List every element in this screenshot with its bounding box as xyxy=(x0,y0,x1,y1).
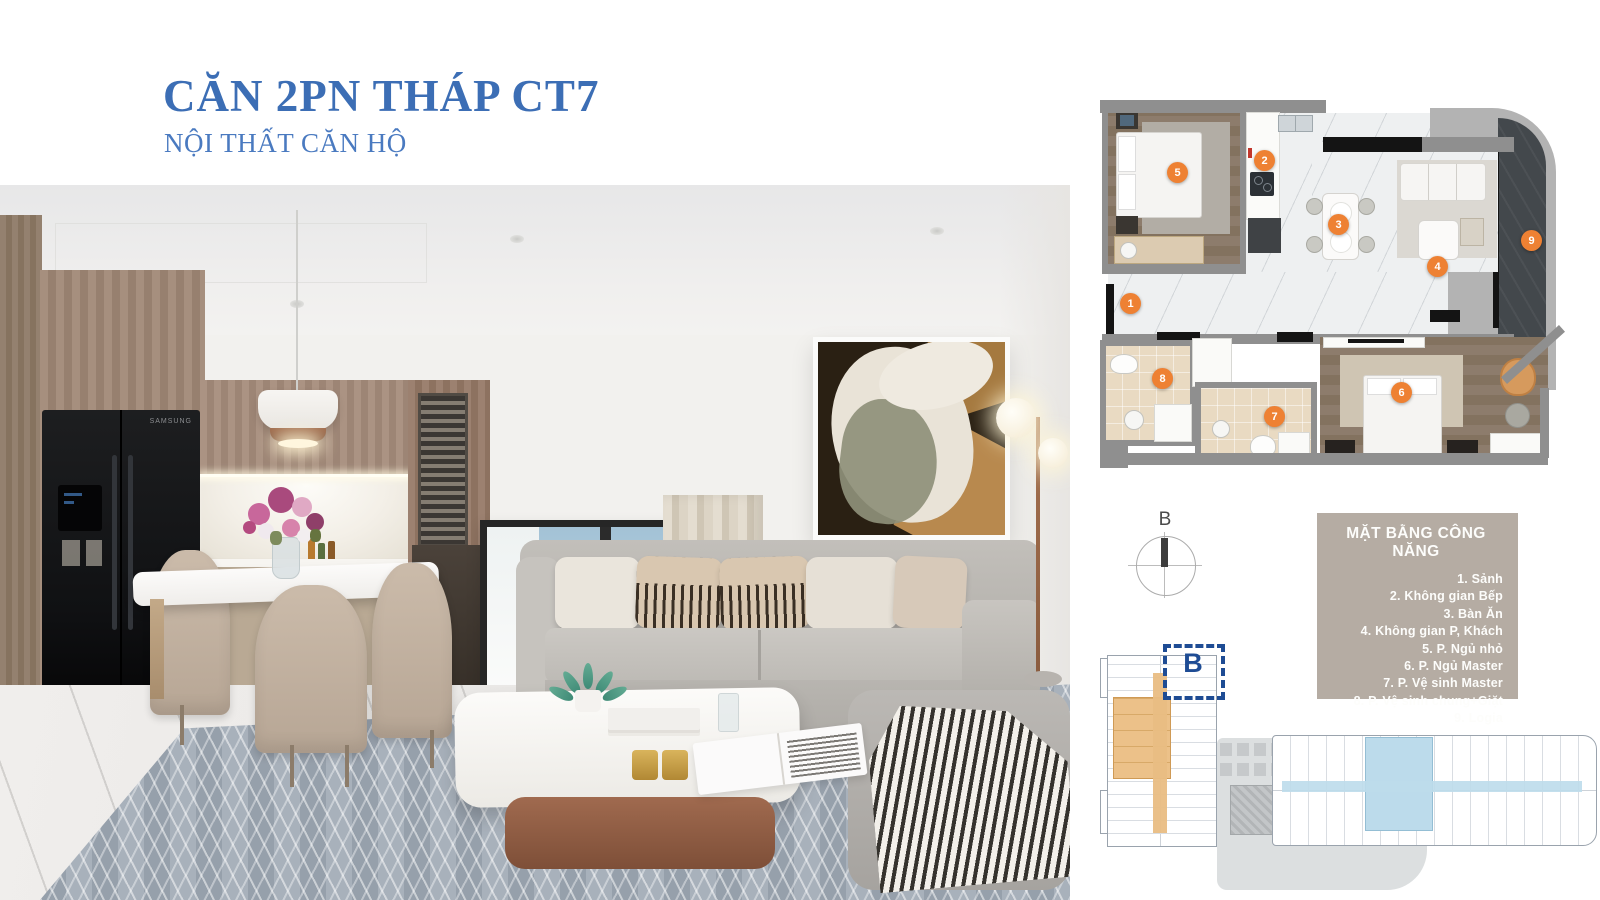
unit-floor-plan: 123456789 xyxy=(1100,98,1558,484)
page: CĂN 2PN THÁP CT7 NỘI THẤT CĂN HỘ xyxy=(0,0,1600,900)
pendant-glow xyxy=(278,439,318,448)
fridge-display xyxy=(64,493,82,496)
sofa-pillow-striped xyxy=(635,556,723,631)
site-unit-locator-label: B xyxy=(1168,648,1218,679)
bottle xyxy=(318,543,325,559)
pendant-lamp xyxy=(258,390,338,430)
plan-markers: 123456789 xyxy=(1100,98,1558,484)
fridge-display xyxy=(64,501,74,504)
room-marker-6: 6 xyxy=(1391,382,1412,403)
floor-lamp-globe xyxy=(996,398,1036,438)
downlight xyxy=(930,227,944,235)
sofa-pillow xyxy=(806,557,898,629)
chair-leg xyxy=(290,745,294,787)
interior-photo: SAMSUNG xyxy=(0,185,1070,900)
sofa-arm-right xyxy=(962,600,1040,700)
fridge-brand-label: SAMSUNG xyxy=(150,418,192,425)
dining-chair xyxy=(255,585,367,753)
fridge-door-seam xyxy=(120,410,122,695)
room-marker-8: 8 xyxy=(1152,368,1173,389)
site-corridor-blue xyxy=(1282,781,1582,792)
chair-leg xyxy=(180,705,184,745)
room-marker-1: 1 xyxy=(1120,293,1141,314)
site-plan: B xyxy=(1080,640,1560,896)
sofa-pillow xyxy=(892,555,968,631)
sofa-pillow-striped xyxy=(719,555,811,630)
sofa-seam xyxy=(758,630,761,680)
legend-item: 1. Sảnh xyxy=(1329,571,1503,588)
table-leg xyxy=(150,599,164,699)
book-stack xyxy=(608,708,700,730)
drinking-glass xyxy=(718,693,739,732)
room-marker-4: 4 xyxy=(1427,256,1448,277)
bottle xyxy=(328,541,335,559)
room-marker-9: 9 xyxy=(1521,230,1542,251)
floor-lamp-base xyxy=(1024,671,1062,687)
room-marker-3: 3 xyxy=(1328,214,1349,235)
fridge-note xyxy=(62,540,80,566)
abstract-wall-art xyxy=(813,337,1010,540)
page-subtitle: NỘI THẤT CĂN HỘ xyxy=(164,128,407,159)
bottle xyxy=(308,539,315,559)
fridge-handle xyxy=(112,455,117,630)
legend-item: 3. Bàn Ăn xyxy=(1329,606,1503,623)
room-marker-7: 7 xyxy=(1264,406,1285,427)
dining-chair xyxy=(372,563,452,738)
page-title: CĂN 2PN THÁP CT7 xyxy=(163,70,599,122)
legend-item: 4. Không gian P, Khách xyxy=(1329,623,1503,640)
chair-leg xyxy=(430,730,434,768)
compass-north-label: B xyxy=(1132,509,1198,531)
plant-pot xyxy=(575,690,601,712)
under-cabinet-light xyxy=(200,474,412,477)
compass-needle xyxy=(1161,538,1168,567)
gold-candle xyxy=(662,750,688,780)
sofa-pillow xyxy=(555,557,640,629)
chair-leg xyxy=(345,745,349,787)
legend-title: MẶT BẰNG CÔNG NĂNG xyxy=(1329,525,1503,561)
fridge-dispenser xyxy=(58,485,102,531)
fridge-note xyxy=(86,540,102,566)
wood-panel-wall xyxy=(0,215,42,693)
room-marker-5: 5 xyxy=(1167,162,1188,183)
pendant-cord xyxy=(296,210,298,390)
fridge-handle xyxy=(128,455,133,630)
legend-item: 2. Không gian Bếp xyxy=(1329,588,1503,605)
downlight xyxy=(510,235,524,243)
succulent-plant xyxy=(572,655,604,695)
louver-vent xyxy=(418,393,468,547)
floor-lamp-globe xyxy=(1038,438,1068,468)
room-marker-2: 2 xyxy=(1254,150,1275,171)
coffee-table-base xyxy=(505,797,775,869)
gold-candle xyxy=(632,750,658,780)
